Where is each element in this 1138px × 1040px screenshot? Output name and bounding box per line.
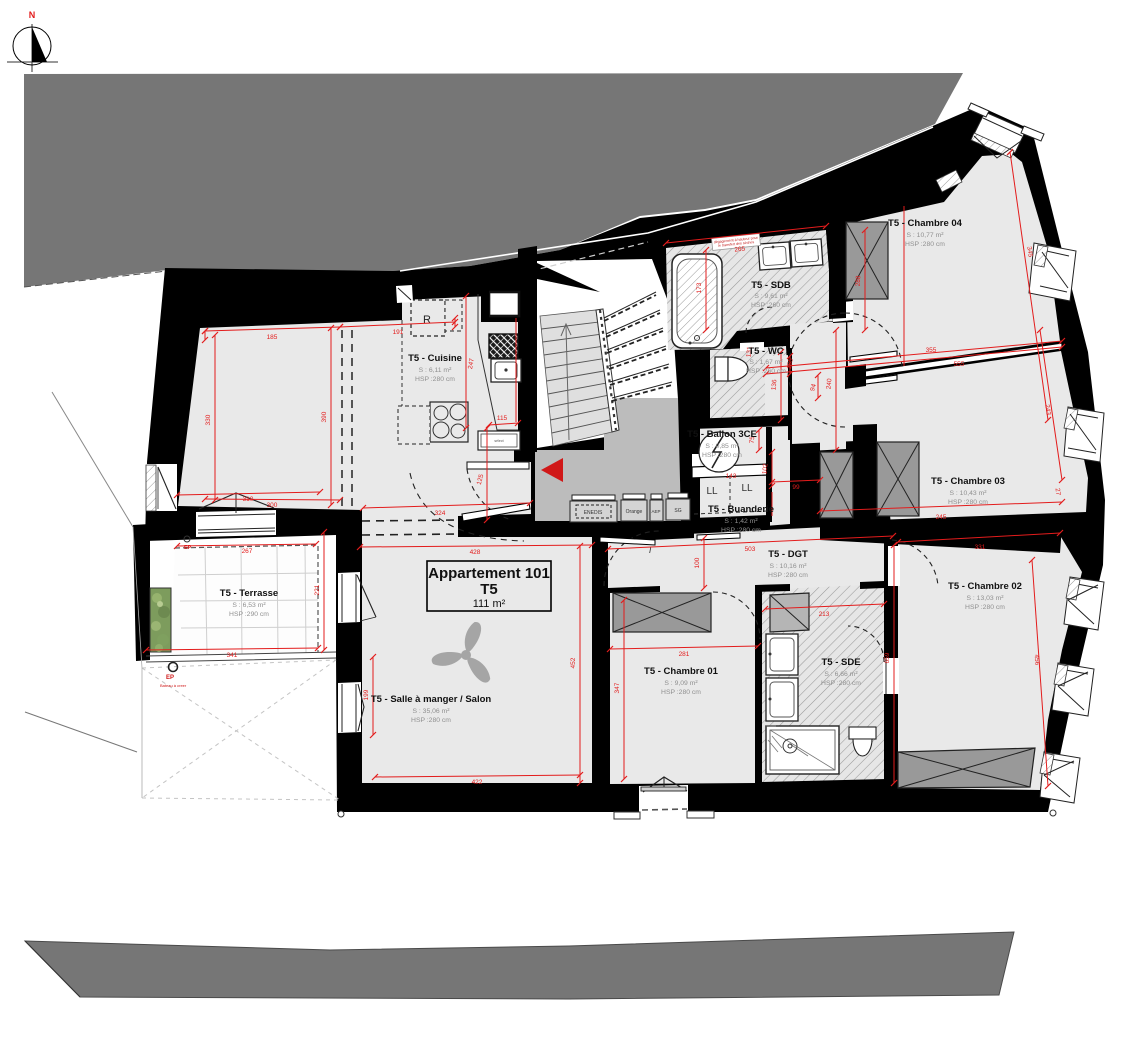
svg-text:HSP :280 cm: HSP :280 cm <box>411 717 451 724</box>
svg-text:191: 191 <box>393 329 404 336</box>
svg-text:S : 9,09 m²: S : 9,09 m² <box>664 680 698 687</box>
svg-text:SG: SG <box>674 508 681 514</box>
svg-text:330: 330 <box>205 414 212 425</box>
svg-text:115: 115 <box>497 415 508 422</box>
svg-text:355: 355 <box>926 347 937 354</box>
svg-text:HSP :280 cm: HSP :280 cm <box>661 689 701 696</box>
svg-text:245: 245 <box>936 514 947 521</box>
svg-text:R: R <box>423 314 431 326</box>
svg-text:S : 13,03 m²: S : 13,03 m² <box>966 595 1004 602</box>
svg-text:T5 - Terrasse: T5 - Terrasse <box>220 588 278 599</box>
svg-text:sélect: sélect <box>494 439 503 443</box>
svg-text:185: 185 <box>267 334 278 341</box>
svg-text:Orange: Orange <box>626 509 643 515</box>
svg-text:240: 240 <box>826 378 834 390</box>
svg-text:HSP :280 cm: HSP :280 cm <box>965 604 1005 611</box>
svg-text:300: 300 <box>267 502 278 509</box>
svg-text:100: 100 <box>694 557 701 568</box>
svg-text:LL: LL <box>706 486 718 497</box>
svg-text:341: 341 <box>227 652 238 659</box>
svg-text:136: 136 <box>771 379 779 391</box>
svg-text:428: 428 <box>470 549 481 556</box>
svg-text:HSP :290 cm: HSP :290 cm <box>229 611 269 618</box>
svg-text:T5 - Chambre 04: T5 - Chambre 04 <box>888 218 963 229</box>
svg-text:173: 173 <box>696 282 703 293</box>
svg-text:T5 - SDE: T5 - SDE <box>821 657 860 668</box>
svg-text:310: 310 <box>243 496 254 503</box>
svg-text:390: 390 <box>321 411 328 422</box>
svg-text:347: 347 <box>614 682 621 693</box>
svg-text:HSP :260 cm: HSP :260 cm <box>746 368 786 375</box>
svg-text:T5 - Cuisine: T5 - Cuisine <box>408 353 462 364</box>
svg-text:S : 1,67 m²: S : 1,67 m² <box>749 359 783 366</box>
svg-text:S : 9,61 m²: S : 9,61 m² <box>754 293 788 300</box>
svg-text:265: 265 <box>734 245 746 253</box>
svg-text:LL: LL <box>741 483 753 494</box>
svg-text:T5 - WC: T5 - WC <box>748 346 783 357</box>
svg-text:HSP :280 cm: HSP :280 cm <box>905 241 945 248</box>
svg-text:S : 0,85 m²: S : 0,85 m² <box>705 443 739 450</box>
svg-text:T5 - DGT: T5 - DGT <box>768 549 808 560</box>
svg-text:HSP :280 cm: HSP :280 cm <box>415 376 455 383</box>
svg-text:HSP :280 cm: HSP :280 cm <box>948 499 988 506</box>
svg-text:102: 102 <box>762 463 770 475</box>
svg-text:T5 - SDB: T5 - SDB <box>751 280 791 291</box>
svg-text:N: N <box>29 10 36 20</box>
svg-text:221: 221 <box>314 584 321 595</box>
svg-text:Appartement 101: Appartement 101 <box>428 565 550 582</box>
svg-text:T5: T5 <box>480 581 498 598</box>
svg-text:HSP :280 cm: HSP :280 cm <box>721 527 761 534</box>
svg-text:T5 - Chambre 03: T5 - Chambre 03 <box>931 476 1005 487</box>
svg-text:S : 35,06 m²: S : 35,06 m² <box>412 708 450 715</box>
svg-text:S : 6,66 m²: S : 6,66 m² <box>824 671 858 678</box>
svg-text:659: 659 <box>884 652 891 663</box>
svg-text:HSP :280 cm: HSP :280 cm <box>821 680 861 687</box>
svg-text:S : 6,11 m²: S : 6,11 m² <box>419 367 452 374</box>
svg-text:267: 267 <box>242 548 253 555</box>
svg-text:S : 10,77 m²: S : 10,77 m² <box>906 232 944 239</box>
svg-text:T5 - Ballon 3CE: T5 - Ballon 3CE <box>687 429 757 440</box>
svg-text:288: 288 <box>855 275 863 287</box>
svg-text:HSP :280 cm: HSP :280 cm <box>702 452 742 459</box>
svg-text:452: 452 <box>570 657 577 668</box>
svg-text:281: 281 <box>679 651 690 658</box>
svg-text:99: 99 <box>792 484 800 491</box>
svg-text:T5 - Buanderie: T5 - Buanderie <box>708 504 774 515</box>
svg-text:503: 503 <box>745 546 756 553</box>
svg-text:S : 10,16 m²: S : 10,16 m² <box>769 563 807 570</box>
svg-text:T5 - Chambre 01: T5 - Chambre 01 <box>644 666 719 677</box>
svg-text:EP: EP <box>166 675 174 681</box>
svg-text:S : 6,53 m²: S : 6,53 m² <box>232 602 266 609</box>
svg-text:555: 555 <box>954 361 965 368</box>
svg-text:143: 143 <box>726 473 737 480</box>
svg-text:199: 199 <box>363 689 370 700</box>
svg-text:S : 10,43 m²: S : 10,43 m² <box>949 490 987 497</box>
svg-text:422: 422 <box>472 779 483 786</box>
svg-text:T5 - Salle à manger / Salon: T5 - Salle à manger / Salon <box>371 694 492 705</box>
svg-text:27: 27 <box>1054 488 1062 497</box>
svg-text:ENEDIS: ENEDIS <box>584 510 603 516</box>
svg-text:456: 456 <box>1033 654 1041 666</box>
svg-text:AEP: AEP <box>651 509 660 514</box>
svg-text:HSP :280 cm: HSP :280 cm <box>768 572 808 579</box>
svg-text:HSP :260 cm: HSP :260 cm <box>751 302 791 309</box>
svg-text:T5 - Chambre 02: T5 - Chambre 02 <box>948 581 1022 592</box>
svg-text:S : 1,42 m²: S : 1,42 m² <box>724 518 758 525</box>
svg-text:Bateau à creer: Bateau à creer <box>160 683 187 688</box>
svg-text:324: 324 <box>435 510 446 517</box>
svg-text:331: 331 <box>975 544 986 551</box>
svg-text:213: 213 <box>819 611 830 618</box>
svg-text:111 m²: 111 m² <box>473 598 506 610</box>
